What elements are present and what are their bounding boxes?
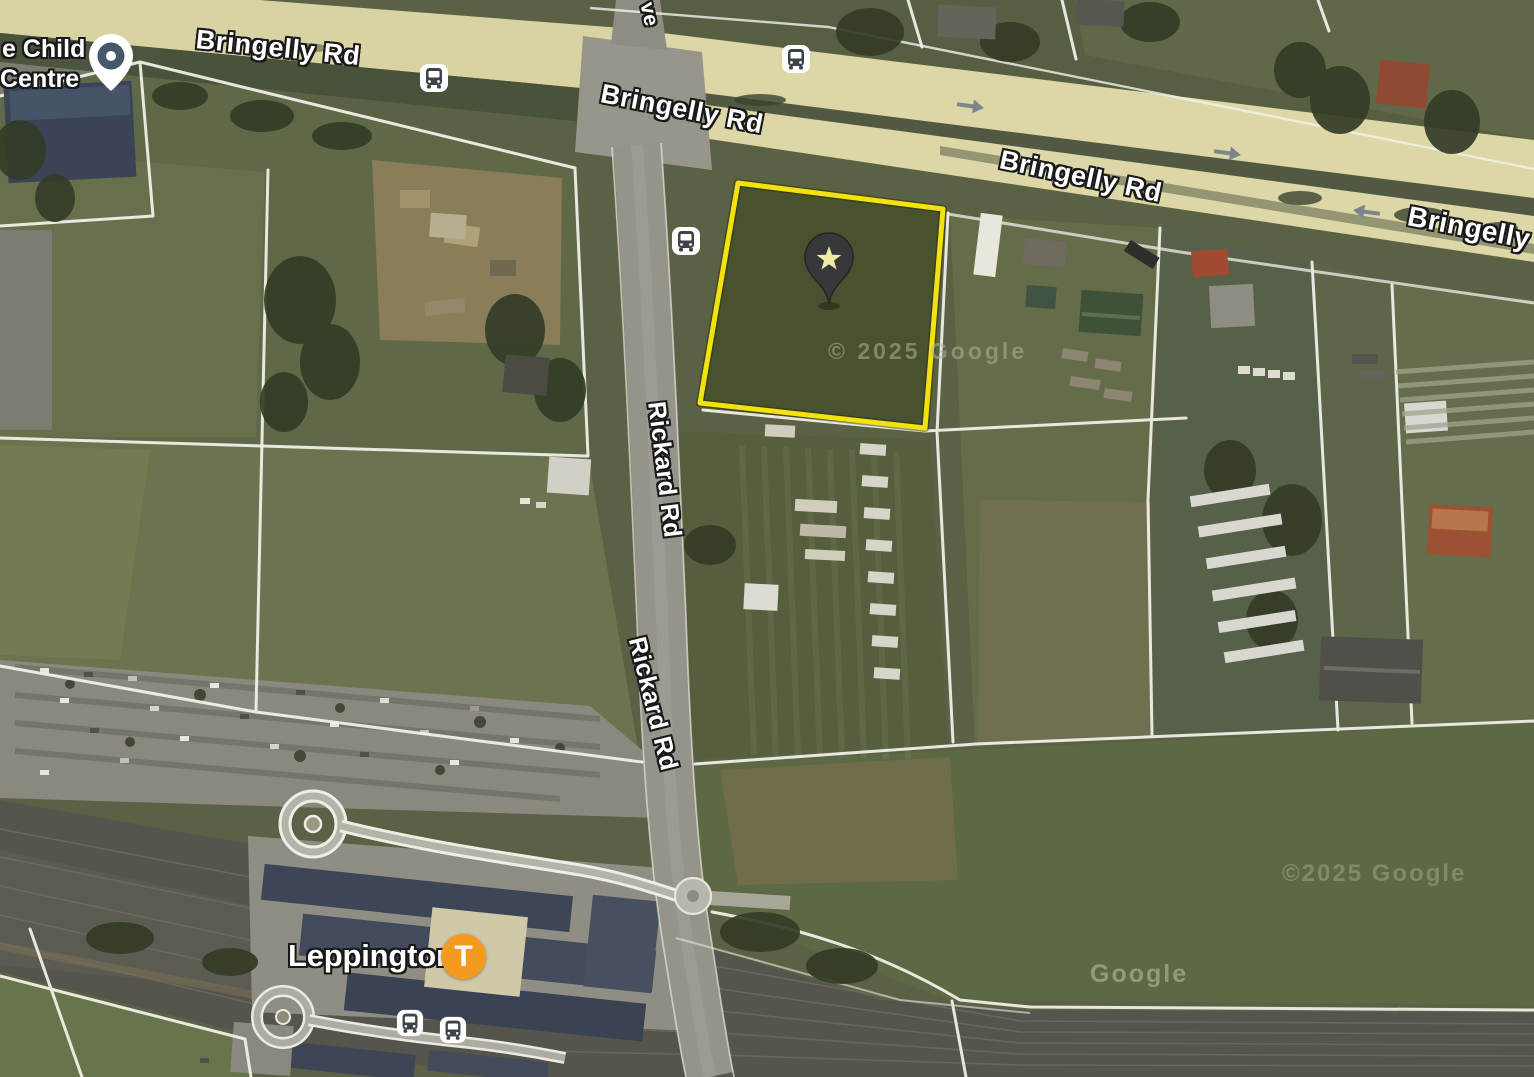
bus-icon[interactable] xyxy=(671,226,701,261)
bus-icon[interactable] xyxy=(419,63,449,98)
bus-icon[interactable] xyxy=(439,1016,467,1049)
satellite-terrain xyxy=(0,0,1534,1077)
child-centre-label-line1: e Child xyxy=(2,34,85,64)
location-pin-icon[interactable] xyxy=(88,33,134,97)
road-label-avenue-partial: ve xyxy=(635,0,664,29)
bus-icon[interactable] xyxy=(396,1009,424,1042)
watermark-google-field: ©2025 Google xyxy=(1282,860,1466,888)
t-badge-icon[interactable]: T xyxy=(441,934,486,979)
satellite-map[interactable]: Bringelly Rd Bringelly Rd Bringelly Rd B… xyxy=(0,0,1534,1077)
child-centre-label-line2: Centre xyxy=(0,64,79,94)
watermark-google-rail: Google xyxy=(1090,960,1188,989)
station-label-leppington: Leppington xyxy=(288,938,455,974)
star-pin-icon[interactable] xyxy=(800,232,858,313)
watermark-google-parcel: © 2025 Google xyxy=(828,338,1027,365)
bus-icon[interactable] xyxy=(781,44,811,79)
